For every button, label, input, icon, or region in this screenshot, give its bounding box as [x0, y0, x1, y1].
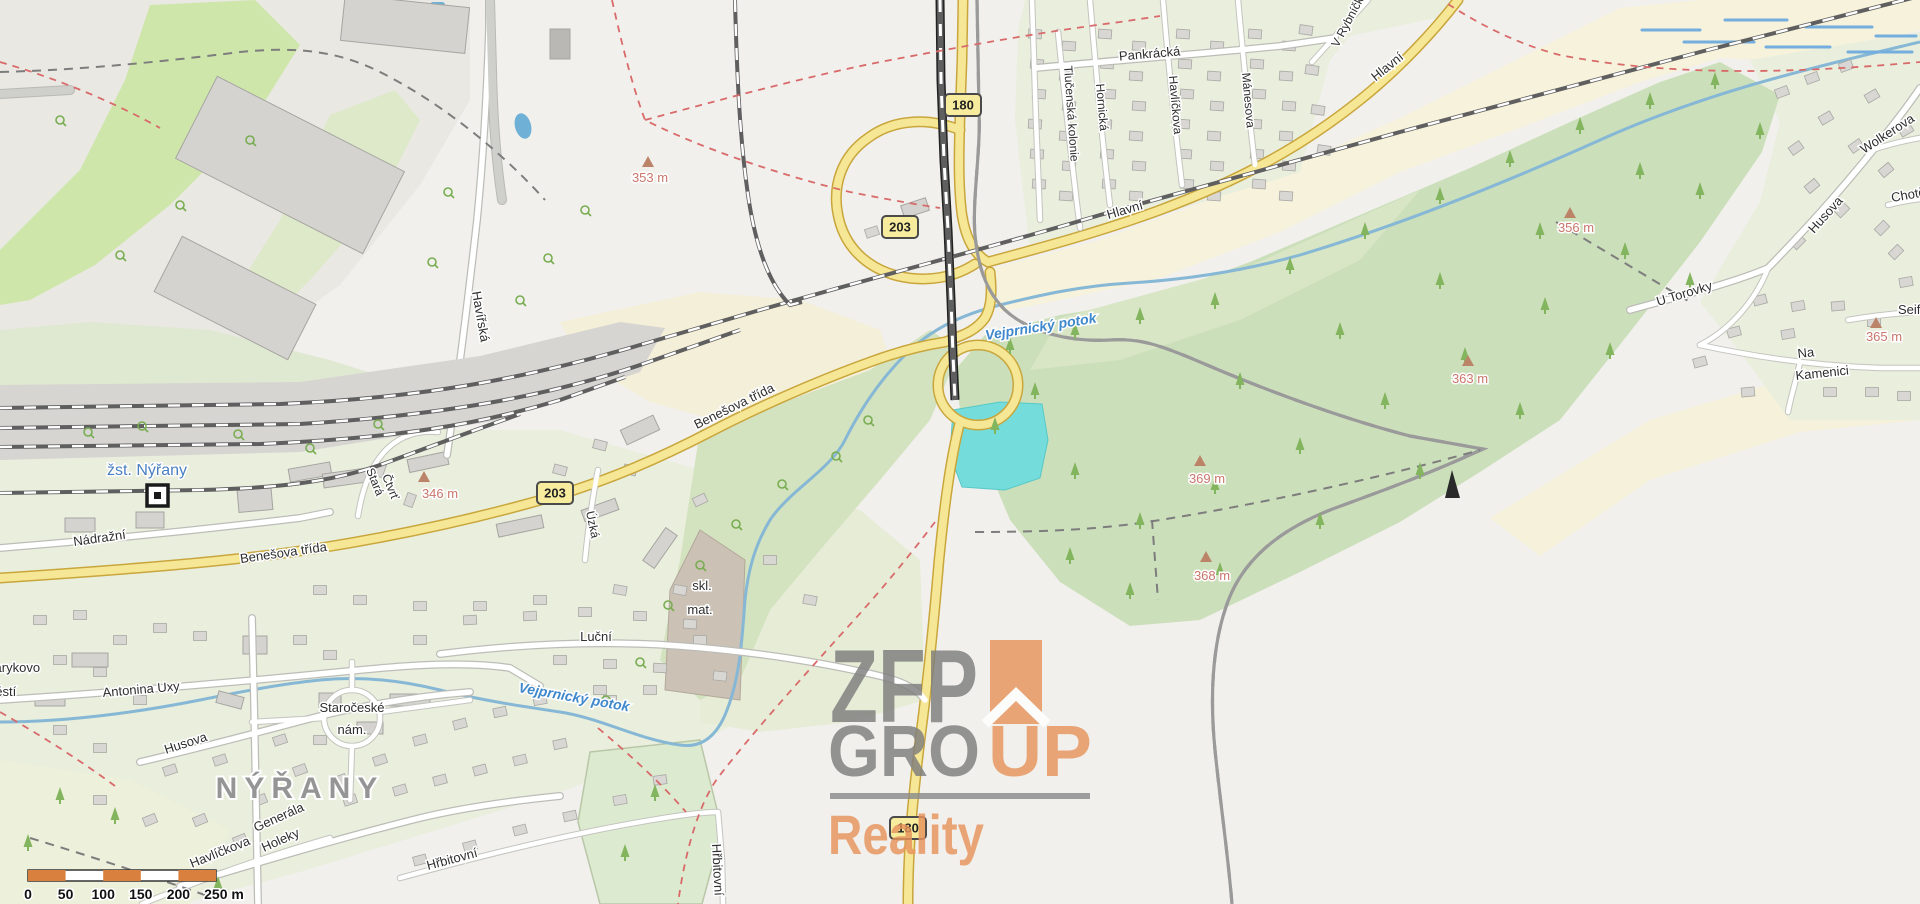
road-shield-203: 203: [537, 482, 573, 504]
train-station-icon: [147, 485, 168, 506]
scale-bar: 0 50 100 150 200 250 m: [24, 870, 244, 902]
square-label: nám.: [338, 722, 367, 737]
town-label: NÝŘANY: [216, 771, 385, 805]
scale-tick: 200: [167, 886, 191, 902]
elevation-label: 356 m: [1558, 220, 1594, 235]
map-canvas[interactable]: Pankrácká Tlučenská kolonie Hornická Hav…: [0, 0, 1920, 904]
scale-tick: 50: [58, 886, 74, 902]
storage-label: skl.: [692, 578, 712, 593]
station-label: žst. Nýřany: [107, 462, 187, 479]
road-shield-180: 180: [945, 94, 981, 116]
elevation-label: 346 m: [422, 486, 458, 501]
watermark-gro-text: GRO: [828, 712, 980, 792]
watermark-divider: [830, 793, 1090, 799]
square-label: Staročeské: [319, 700, 384, 715]
scale-tick: 150: [129, 886, 153, 902]
square-label: náměstí: [0, 684, 17, 699]
street-label: Na: [1797, 344, 1816, 361]
svg-text:203: 203: [889, 220, 911, 235]
elevation-label: 363 m: [1452, 371, 1488, 386]
watermark-reality-text: Reality: [828, 803, 984, 866]
elevation-label: 365 m: [1866, 329, 1902, 344]
street-label: Luční: [580, 629, 612, 644]
map-viewport[interactable]: Pankrácká Tlučenská kolonie Hornická Hav…: [0, 0, 1920, 904]
storage-label: mat.: [687, 602, 712, 617]
watermark-up-text: UP: [988, 712, 1092, 792]
svg-text:203: 203: [544, 486, 566, 501]
scale-tick: 0: [24, 886, 32, 902]
square-label: Masarykovo: [0, 660, 40, 675]
svg-text:180: 180: [952, 98, 974, 113]
street-label: Seifertova: [1898, 302, 1920, 317]
street-label: Hřbitovní: [709, 843, 727, 896]
scale-tick: 250 m: [204, 886, 244, 902]
scale-tick: 100: [92, 886, 116, 902]
elevation-label: 368 m: [1194, 568, 1230, 583]
elevation-label: 353 m: [632, 170, 668, 185]
road-shield-203: 203: [882, 216, 918, 238]
elevation-label: 369 m: [1189, 471, 1225, 486]
